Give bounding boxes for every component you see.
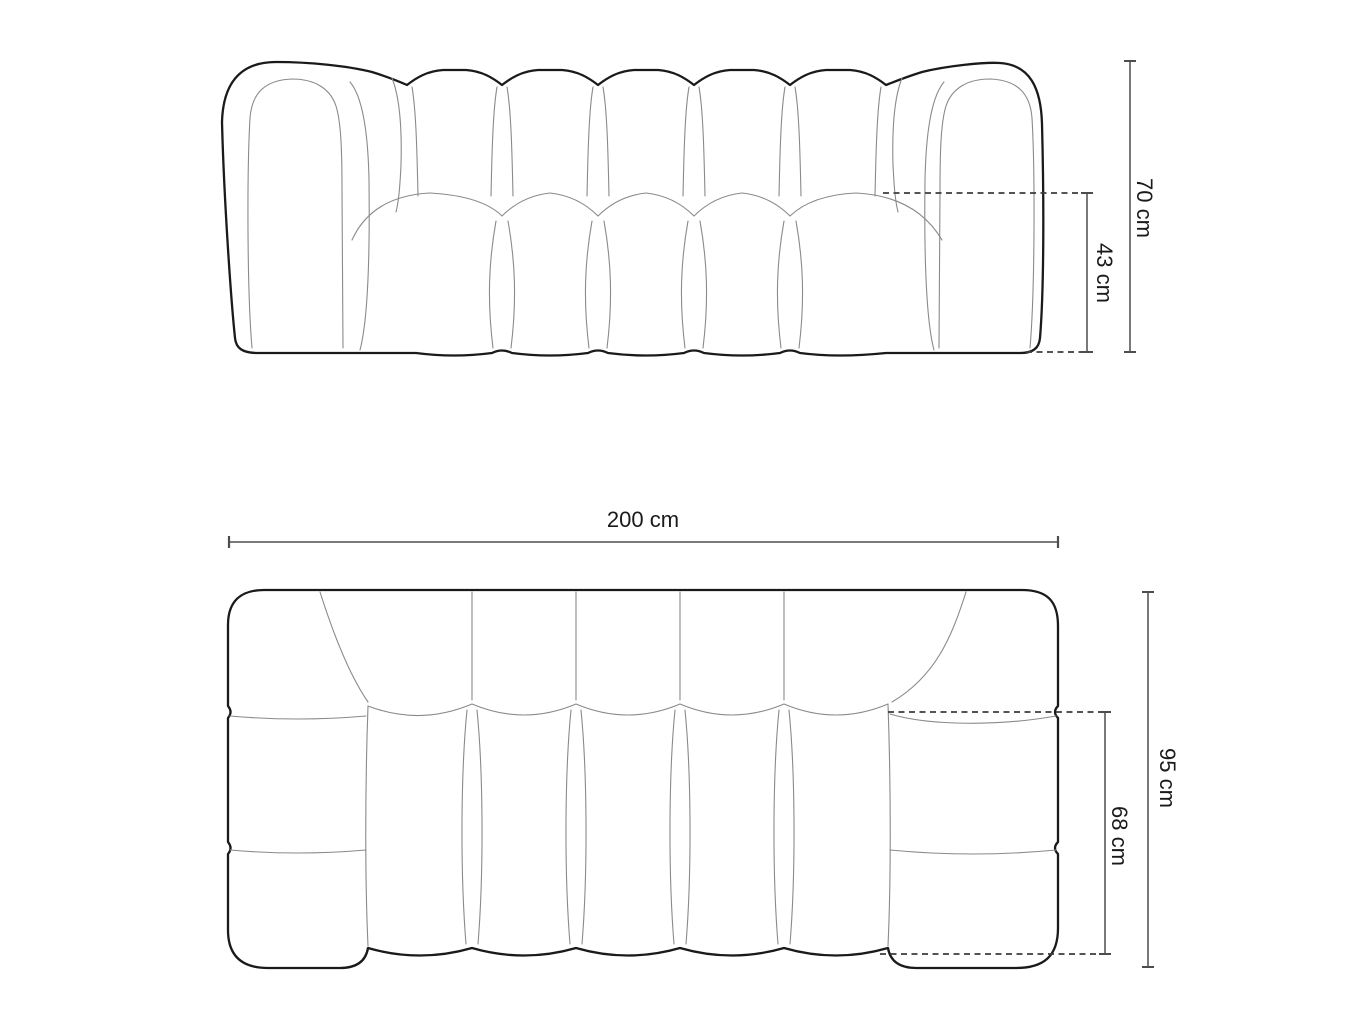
top-dashed-reference-lines <box>880 712 1105 954</box>
seam-line <box>350 82 369 350</box>
seam-line <box>890 714 1056 723</box>
dimension-line-95cm <box>1142 592 1154 967</box>
total-depth-label: 95 cm <box>1155 748 1180 808</box>
top-dimension-labels: 68 cm 95 cm <box>1107 748 1180 866</box>
seam-line <box>683 87 689 196</box>
seat-height-label: 43 cm <box>1092 243 1117 303</box>
sofa-front-outline <box>222 62 1043 356</box>
seam-line <box>685 710 690 944</box>
seam-line <box>699 87 705 196</box>
seam-line <box>491 87 497 196</box>
seam-line <box>939 79 1034 348</box>
seam-line <box>352 193 942 240</box>
seam-line <box>774 710 779 944</box>
seam-line <box>777 221 784 348</box>
seam-line <box>779 87 785 196</box>
seam-line <box>670 710 675 944</box>
seam-line <box>893 78 902 212</box>
front-dashed-reference-lines <box>883 193 1087 352</box>
total-width-label: 200 cm <box>607 507 679 532</box>
drawing-canvas: 43 cm 70 cm 200 cm <box>0 0 1372 1029</box>
seam-line <box>925 82 944 350</box>
seam-line <box>888 704 890 946</box>
top-sofa-outline-group <box>228 590 1058 968</box>
seam-line <box>681 221 688 348</box>
seam-line <box>604 221 611 348</box>
sofa-dimension-diagram: 43 cm 70 cm 200 cm <box>0 0 1372 1029</box>
width-dimension: 200 cm <box>229 507 1058 548</box>
seam-line <box>462 710 467 944</box>
seam-line <box>875 87 881 196</box>
seam-line <box>368 704 888 716</box>
seam-line <box>890 850 1056 854</box>
seam-line <box>230 716 366 719</box>
seam-line <box>587 87 593 196</box>
seam-line <box>392 78 401 212</box>
top-dimension-lines <box>1099 592 1154 967</box>
seam-line <box>700 221 707 348</box>
seam-line <box>248 79 343 348</box>
total-height-label: 70 cm <box>1132 178 1157 238</box>
seam-line <box>507 87 513 196</box>
seam-line <box>320 592 368 702</box>
front-sofa-outline-group <box>222 62 1043 356</box>
seam-line <box>508 221 515 348</box>
front-view: 43 cm 70 cm <box>222 61 1157 356</box>
seam-line <box>892 592 966 702</box>
seam-line <box>789 710 794 944</box>
seam-line <box>795 87 801 196</box>
seam-line <box>603 87 609 196</box>
dimension-line-43cm <box>1081 193 1093 352</box>
top-seam-lines <box>230 592 1056 946</box>
sofa-top-outline <box>228 590 1058 968</box>
top-view: 68 cm 95 cm <box>228 590 1180 968</box>
seam-line <box>230 850 366 853</box>
front-seam-lines <box>248 78 1034 350</box>
seam-line <box>412 87 418 196</box>
seat-depth-label: 68 cm <box>1107 806 1132 866</box>
seam-line <box>585 221 592 348</box>
seam-line <box>566 710 571 944</box>
seam-line <box>796 221 803 348</box>
front-dimension-lines <box>1081 61 1136 352</box>
front-dimension-labels: 43 cm 70 cm <box>1092 178 1157 303</box>
seam-line <box>489 221 496 348</box>
seam-line <box>581 710 586 944</box>
seam-line <box>366 706 368 946</box>
seam-line <box>477 710 482 944</box>
